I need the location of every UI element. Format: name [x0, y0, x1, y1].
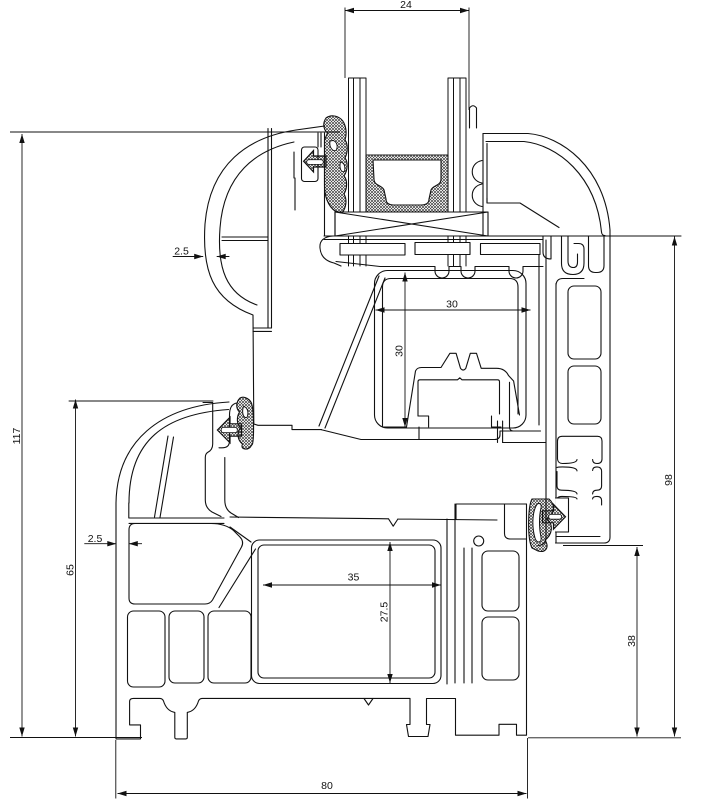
svg-text:35: 35 [348, 572, 360, 584]
svg-text:30: 30 [394, 345, 406, 357]
svg-text:98: 98 [663, 474, 675, 486]
svg-text:30: 30 [446, 299, 458, 311]
svg-text:2.5: 2.5 [174, 245, 189, 257]
svg-text:80: 80 [321, 780, 333, 792]
svg-text:24: 24 [400, 0, 412, 11]
svg-text:65: 65 [64, 564, 76, 576]
svg-text:38: 38 [626, 635, 638, 647]
svg-text:2.5: 2.5 [88, 533, 103, 545]
svg-text:27.5: 27.5 [379, 602, 391, 623]
svg-text:117: 117 [11, 427, 23, 444]
